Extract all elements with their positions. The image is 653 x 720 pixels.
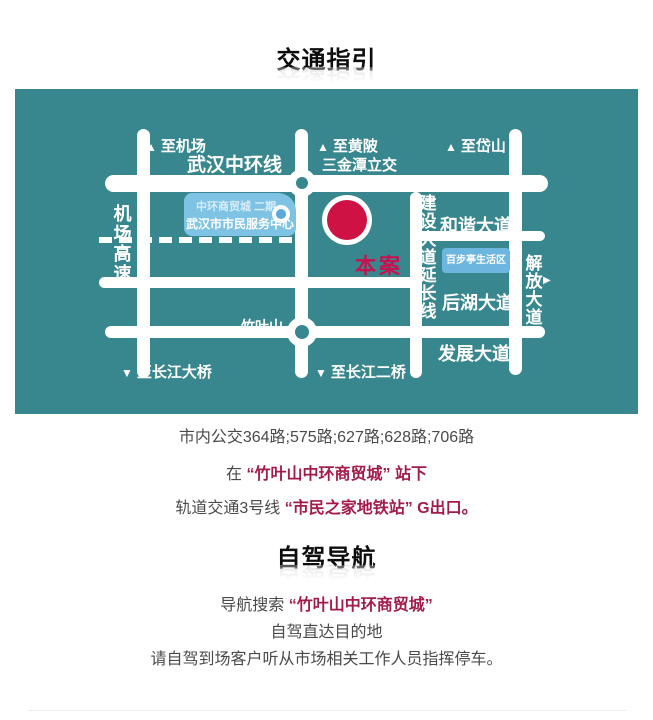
marker-yangtze-bridge1: ▼至长江大桥 xyxy=(121,361,212,382)
mall-location-ring xyxy=(272,205,290,223)
hexie-avenue-label: 和谐大道 xyxy=(440,212,512,238)
fazhan-avenue-label: 发展大道 xyxy=(438,340,510,366)
up-triangle-icon: ▲ xyxy=(317,140,329,154)
airport-expressway-label: 机场高速 xyxy=(113,204,132,284)
reflection-fade xyxy=(0,67,653,83)
nav-search-highlight: “竹叶山中环商贸城” xyxy=(289,597,433,614)
baibuting-box: 百步亭生活区 xyxy=(442,248,510,273)
yangtze-bridge1-label: 至长江大桥 xyxy=(137,364,212,381)
metro-prefix: 轨道交通3号线 xyxy=(175,500,284,517)
site-marker-inner xyxy=(327,200,367,240)
bus-routes-line: 市内公交364路;575路;627路;628路;706路 xyxy=(0,423,653,447)
bus-stop-prefix: 在 xyxy=(226,466,246,483)
yangtze-bridge2-label: 至长江二桥 xyxy=(331,364,406,381)
up-triangle-icon: ▲ xyxy=(145,140,157,154)
houhu-avenue-label: 后湖大道 xyxy=(442,289,514,315)
transit-map: 中环商贸城 二期 武汉市市民服务中心 百步亭生活区 本案 ▲至机场 ▲至黄陂 ▲… xyxy=(15,89,638,414)
baibuting-label: 百步亭生活区 xyxy=(442,248,510,273)
to-daishan-label: 至岱山 xyxy=(461,138,506,155)
jianshe-extension-label: 建设大道延长线 xyxy=(419,195,437,321)
to-huangpi-label: 至黄陂 xyxy=(333,138,378,155)
bottom-divider xyxy=(28,710,626,711)
marker-to-daishan: ▲至岱山 xyxy=(445,135,506,156)
marker-yangtze-bridge2: ▼至长江二桥 xyxy=(315,361,406,382)
down-triangle-icon: ▼ xyxy=(315,366,327,380)
road-ring-road xyxy=(105,175,548,192)
reflection-fade xyxy=(0,565,653,581)
down-triangle-icon: ▼ xyxy=(121,366,133,380)
road-jiefang-avenue xyxy=(509,129,522,375)
driving-line3: 请自驾到场客户听从市场相关工作人员指挥停车。 xyxy=(0,645,653,669)
site-marker-label: 本案 xyxy=(355,250,403,280)
nav-search-line: 导航搜索 “竹叶山中环商贸城” xyxy=(0,591,653,615)
bus-stop-highlight: “竹叶山中环商贸城” 站下 xyxy=(247,466,427,483)
article-page: 交通指引 交通指引 中环商贸城 二期 武汉市市民服务中心 百步亭生活区 本案 xyxy=(0,0,653,720)
jiefang-avenue-label: 解放大道 xyxy=(525,255,543,327)
roundabout-zhuyeshan xyxy=(287,317,317,347)
metro-line: 轨道交通3号线 “市民之家地铁站” G出口。 xyxy=(0,494,653,518)
site-marker-dot xyxy=(322,195,372,245)
road-airport-expressway xyxy=(137,129,150,378)
metro-highlight: “市民之家地铁站” G出口。 xyxy=(285,500,478,517)
zhuyeshan-label: 竹叶山 xyxy=(241,316,283,336)
driving-line2: 自驾直达目的地 xyxy=(0,618,653,642)
nav-search-prefix: 导航搜索 xyxy=(220,597,288,614)
road-fazhan-avenue xyxy=(105,326,545,338)
ring-road-label: 武汉中环线 xyxy=(187,150,282,177)
marker-to-huangpi: ▲至黄陂 xyxy=(317,135,378,156)
up-triangle-icon: ▲ xyxy=(445,140,457,154)
right-triangle-icon: ▶ xyxy=(543,275,551,286)
roundabout-sanjintan xyxy=(288,169,316,197)
bus-stop-line: 在 “竹叶山中环商贸城” 站下 xyxy=(0,460,653,484)
interchange-label: 三金潭立交 xyxy=(322,154,397,175)
